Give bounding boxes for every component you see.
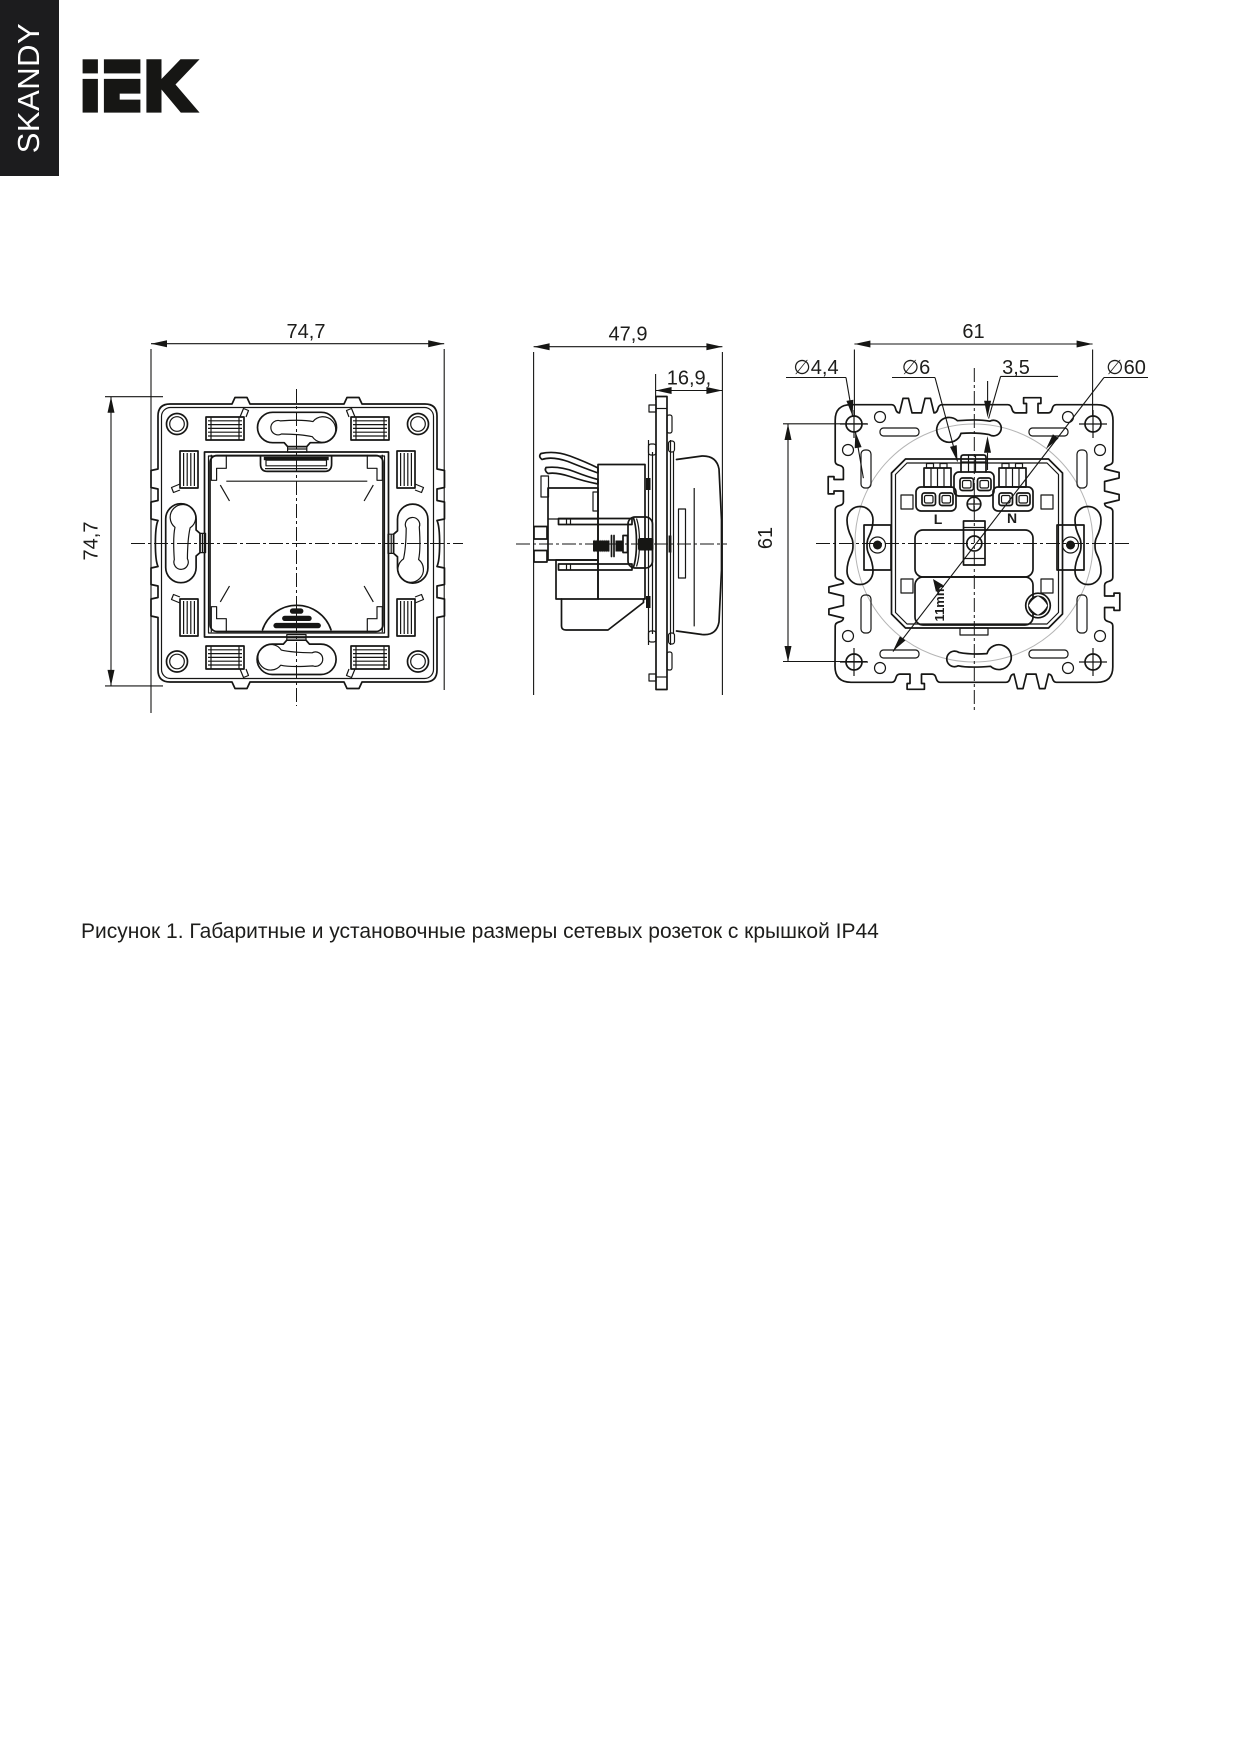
svg-text:N: N	[1007, 510, 1017, 526]
svg-text:61: 61	[755, 527, 777, 549]
svg-text:74,7: 74,7	[81, 522, 103, 561]
svg-text:L: L	[934, 511, 943, 527]
svg-text:∅60: ∅60	[1106, 357, 1146, 379]
svg-text:11mm: 11mm	[932, 585, 947, 622]
svg-text:47,9: 47,9	[609, 324, 648, 346]
svg-text:74,7: 74,7	[287, 321, 326, 343]
svg-text:∅6: ∅6	[902, 357, 931, 379]
svg-text:61: 61	[962, 321, 984, 343]
svg-text:16,9,: 16,9,	[667, 367, 711, 389]
svg-text:∅4,4: ∅4,4	[793, 357, 838, 379]
svg-text:3,5: 3,5	[1002, 357, 1030, 379]
